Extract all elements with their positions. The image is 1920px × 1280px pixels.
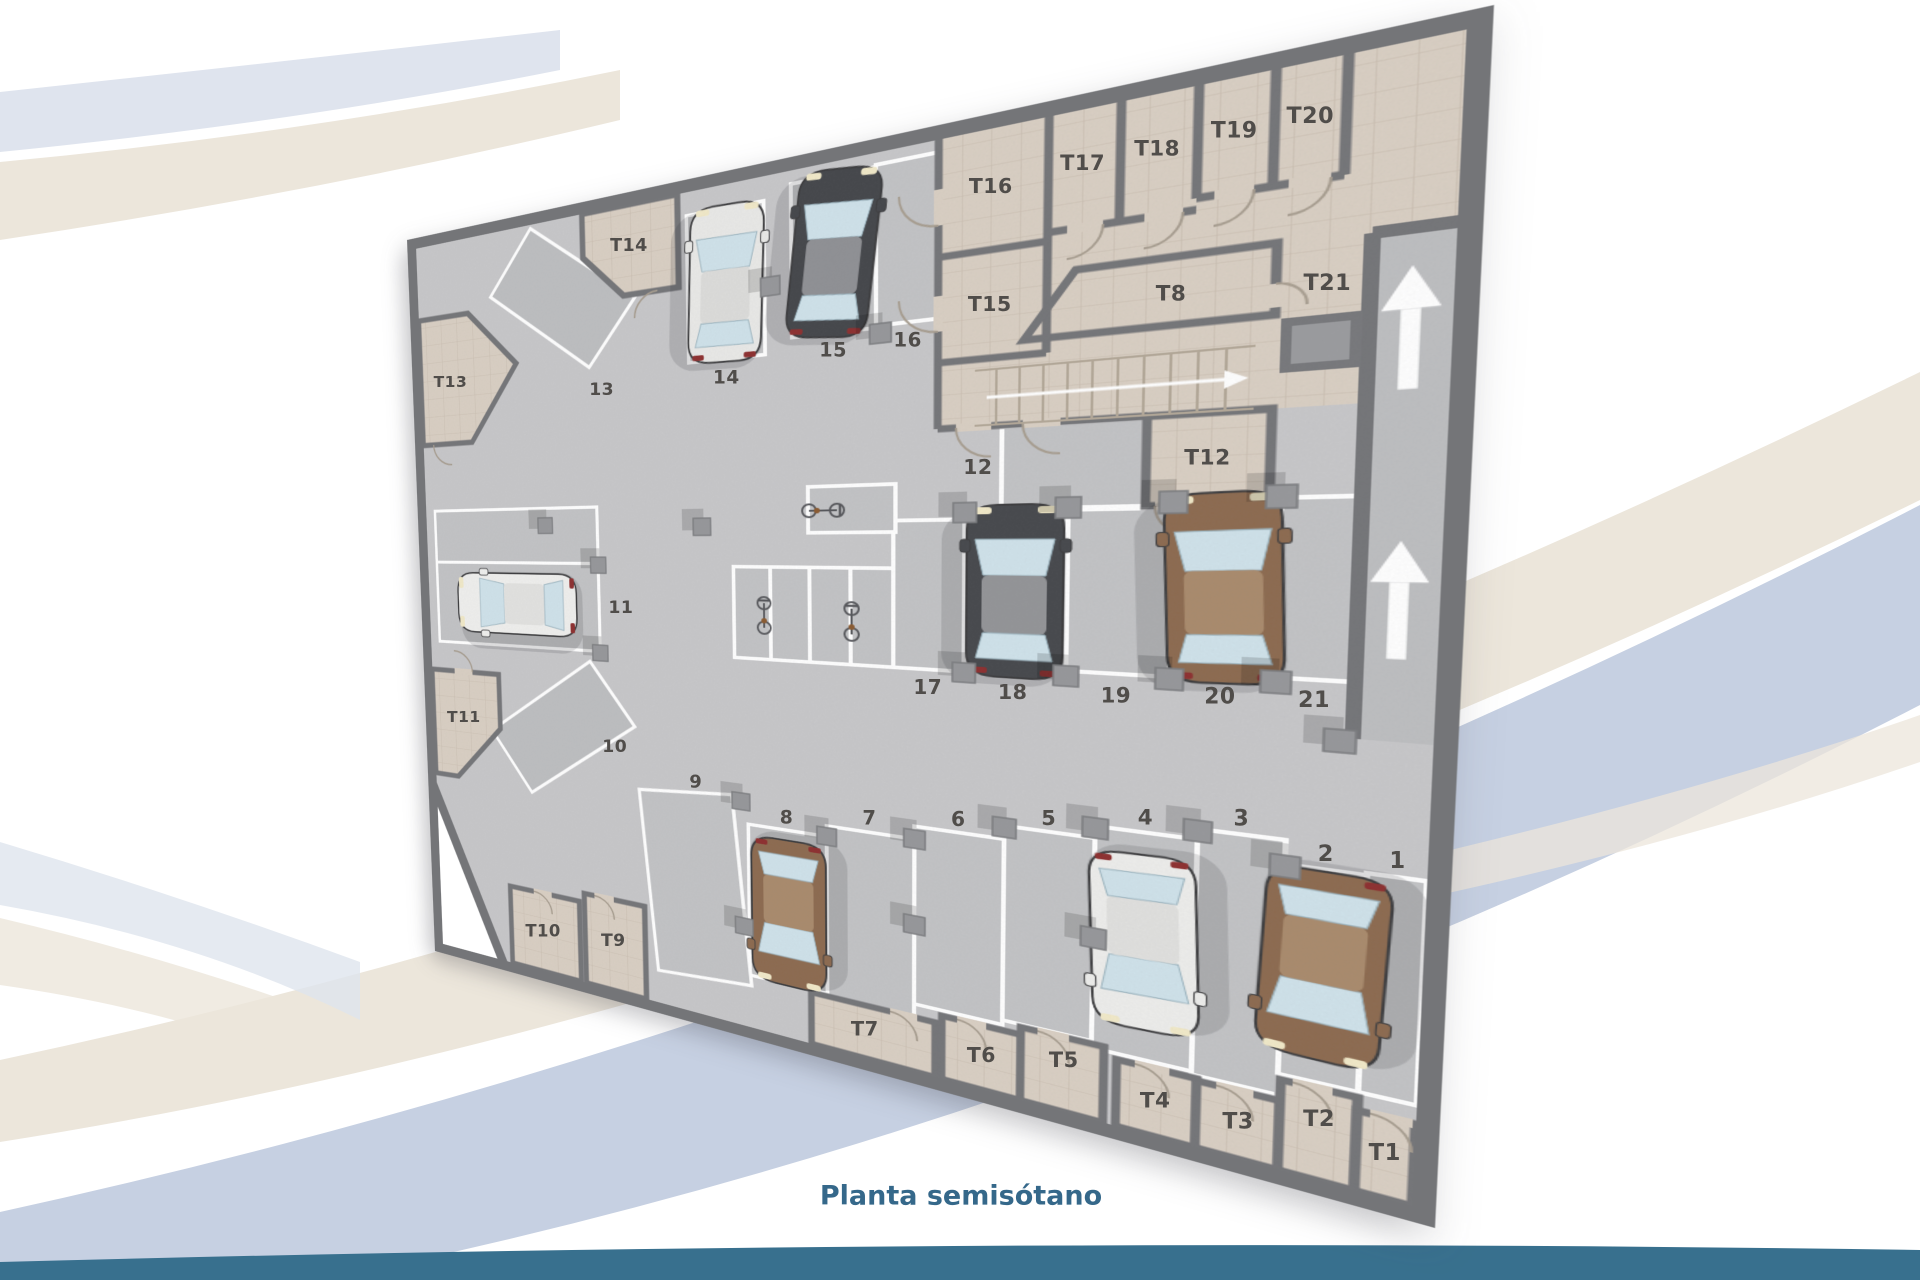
page: { "title": {"text": "Planta semisótano",… <box>0 0 1920 1280</box>
